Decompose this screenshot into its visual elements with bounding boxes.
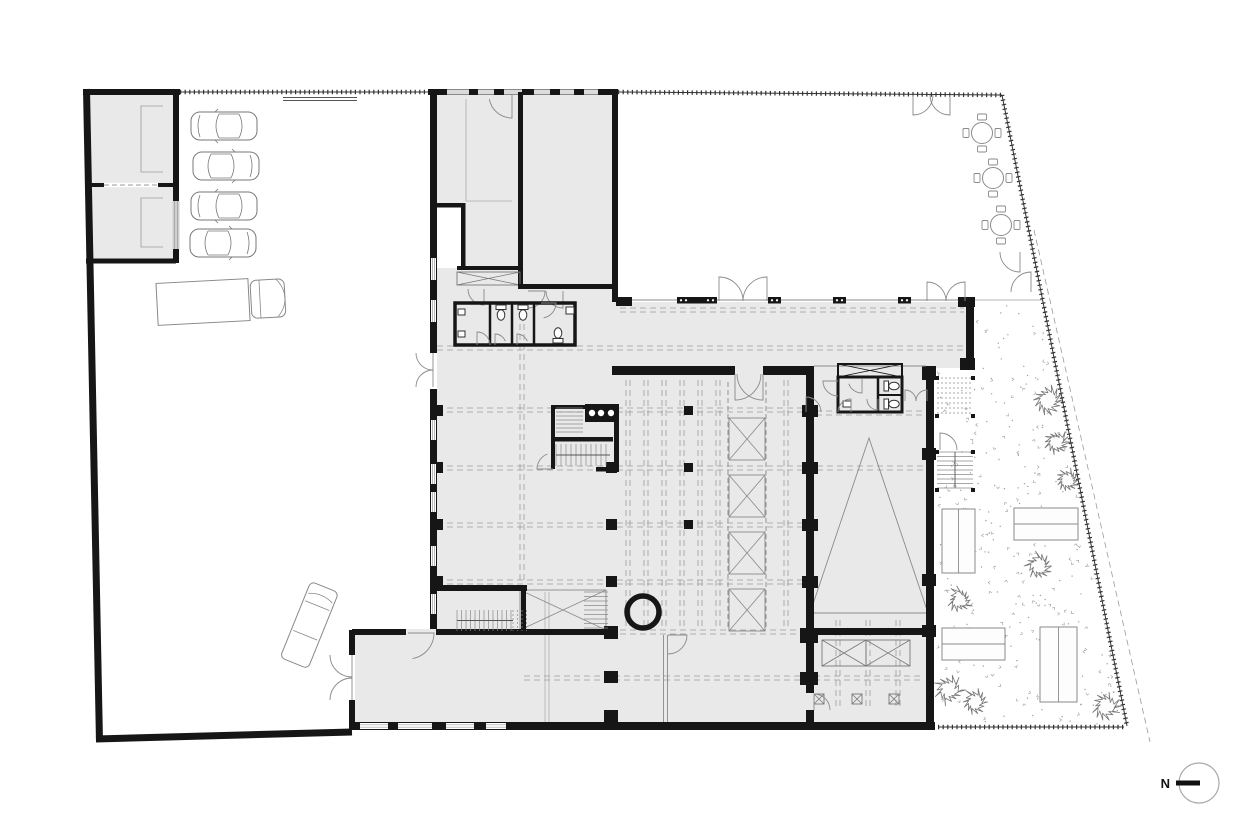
garden-ground <box>1090 577 1094 581</box>
garden-ground <box>998 343 999 344</box>
garden-ground <box>939 497 940 498</box>
sink <box>458 331 465 337</box>
garden-ground <box>1035 377 1036 378</box>
garden-ground <box>1005 580 1009 583</box>
garden-ground <box>976 320 979 323</box>
garden-ground <box>984 329 988 332</box>
garden-ground <box>985 533 989 536</box>
toilet <box>884 399 899 409</box>
column <box>802 405 818 417</box>
garden-ground <box>986 452 987 453</box>
window <box>431 546 436 566</box>
gate-swing <box>1000 252 1020 272</box>
round-table <box>997 206 1006 212</box>
garden-ground <box>1071 575 1072 576</box>
garden-ground <box>996 487 999 489</box>
toilet <box>518 305 528 320</box>
garden-ground <box>1113 692 1114 693</box>
round-table <box>978 114 987 120</box>
fence-north-right <box>618 92 1002 95</box>
garden-ground <box>1059 718 1061 721</box>
door-swing <box>940 433 957 450</box>
round-table <box>983 168 1004 189</box>
window <box>560 90 574 95</box>
wall-room-a-step <box>461 203 466 269</box>
garden-ground <box>979 475 983 479</box>
garden-ground <box>1006 413 1010 417</box>
column <box>802 519 818 531</box>
stair-post <box>935 414 939 418</box>
round-table <box>963 129 969 138</box>
corridor-vent <box>677 297 717 304</box>
garden-ground <box>1018 313 1019 314</box>
garden-ground <box>1052 587 1056 591</box>
sink <box>458 309 465 315</box>
garden-ground <box>1057 612 1059 615</box>
garden-ground <box>1082 676 1083 677</box>
round-table <box>978 146 987 152</box>
column <box>802 462 818 474</box>
garden-ground <box>1036 602 1037 603</box>
round-table <box>982 206 1020 244</box>
garden-ground <box>1017 487 1018 488</box>
garden-ground <box>1086 693 1090 696</box>
garden-ground <box>1011 395 1014 399</box>
garden-ground <box>979 547 983 551</box>
garden-ground <box>1017 595 1021 598</box>
garden-ground <box>1018 455 1019 456</box>
garden-ground <box>1080 704 1081 705</box>
toilet <box>496 305 506 320</box>
garden-ground <box>984 551 985 552</box>
stair-core-wall <box>551 437 613 442</box>
parked-car <box>191 112 257 140</box>
site-wall-south <box>96 732 352 739</box>
garden-ground <box>1032 715 1033 716</box>
garden-ground <box>998 684 1001 688</box>
garden-ground <box>974 457 975 458</box>
garden-ground <box>945 667 948 671</box>
delivery-truck <box>156 279 250 326</box>
stair-core-dot <box>608 410 614 416</box>
wall-pilaster <box>437 462 443 473</box>
garden-ground <box>1107 663 1108 664</box>
garden-ground <box>1031 600 1035 604</box>
garden-ground <box>1021 573 1022 574</box>
column <box>922 574 936 586</box>
garden-ground <box>1010 646 1011 647</box>
garden-ground <box>1062 716 1063 717</box>
garden-ground <box>1042 427 1043 428</box>
garden-ground <box>1015 603 1016 604</box>
garden-ground <box>979 509 980 510</box>
garage-door <box>173 201 180 249</box>
garden-ground <box>1013 556 1014 557</box>
garden-ground <box>1036 694 1039 698</box>
round-table <box>997 238 1006 244</box>
garden-ground <box>956 502 960 505</box>
garden-ground <box>1003 502 1007 505</box>
garden-ground <box>1016 552 1020 556</box>
window <box>446 723 474 729</box>
garden-ground <box>1024 483 1025 484</box>
garden-ground <box>977 483 978 484</box>
garden-ground <box>1009 626 1010 627</box>
window <box>431 594 436 614</box>
garden-ground <box>991 674 994 676</box>
garden-ground <box>1084 648 1086 651</box>
toilet <box>553 339 563 344</box>
garden-ground <box>1000 621 1004 625</box>
toilet <box>884 399 889 409</box>
garden-ground <box>1076 549 1077 550</box>
column <box>606 576 617 587</box>
garden-ground <box>1033 543 1035 546</box>
garden-ground <box>981 566 982 567</box>
garden-ground <box>1080 593 1081 594</box>
corridor-vent <box>841 299 843 301</box>
garden-ground <box>1043 332 1044 333</box>
garden-ground <box>1012 420 1013 421</box>
garden-ground <box>1014 665 1018 668</box>
garden-ground <box>1037 698 1038 699</box>
garden-ground <box>1075 495 1078 499</box>
garden-ground <box>1043 369 1044 370</box>
garden-ground <box>973 609 974 610</box>
sink <box>843 401 851 407</box>
wall-stair-room-north <box>430 585 527 591</box>
corridor-vent <box>707 299 709 301</box>
stair-post <box>935 450 939 454</box>
garden-ground <box>993 539 994 540</box>
corridor-vent <box>680 299 682 301</box>
garden-ground <box>1052 606 1056 609</box>
column <box>604 710 618 723</box>
garden-ground <box>998 347 999 348</box>
garden-ground <box>1117 710 1118 711</box>
window <box>447 90 469 95</box>
toilet <box>884 381 899 391</box>
garden-ground <box>1027 493 1028 494</box>
stair-exterior-upper <box>937 378 973 413</box>
toilet <box>884 381 889 391</box>
garden-ground <box>956 670 960 673</box>
door-swing <box>719 277 743 301</box>
garden-ground <box>1023 366 1024 367</box>
garden-ground <box>1036 425 1038 428</box>
stair-post <box>971 414 975 418</box>
sink <box>566 307 574 314</box>
garden-ground <box>1027 375 1028 376</box>
column <box>684 520 693 529</box>
garden-ground <box>1017 453 1018 454</box>
garden-ground <box>1037 446 1041 450</box>
garden-ground <box>937 645 940 649</box>
round-table <box>974 174 980 183</box>
round-table <box>963 114 1001 152</box>
window <box>398 723 432 729</box>
garden-ground <box>971 611 974 615</box>
garden-ground <box>1062 491 1063 492</box>
garden-ground <box>1078 546 1081 548</box>
garden-ground <box>992 447 996 450</box>
stair-post <box>935 488 939 492</box>
garden-ground <box>1004 488 1005 489</box>
stair-post <box>971 450 975 454</box>
garden-ground <box>970 472 971 473</box>
floor-plan-svg: N <box>0 0 1241 828</box>
garden-ground <box>1028 617 1029 618</box>
garden-ground <box>988 581 990 584</box>
garden-ground <box>988 511 989 512</box>
parked-car <box>193 152 259 180</box>
garden-ground <box>1077 712 1080 716</box>
garden-ground <box>1108 677 1109 678</box>
round-table <box>1006 174 1012 183</box>
stair-core-dot <box>598 410 604 416</box>
column <box>684 406 693 415</box>
garden-ground <box>985 675 989 678</box>
toilet <box>497 310 505 320</box>
toilet <box>889 382 899 390</box>
window <box>360 723 388 729</box>
picnic-table <box>942 628 1005 660</box>
shrub <box>1045 432 1070 455</box>
garden-ground <box>1034 553 1035 554</box>
toilet <box>518 305 528 310</box>
shrub <box>1033 385 1062 415</box>
garden-ground <box>1110 686 1111 687</box>
garden-ground <box>1012 378 1014 381</box>
garden-ground <box>1012 613 1015 615</box>
garden-ground <box>1021 603 1024 607</box>
garden-ground <box>1037 474 1038 475</box>
column <box>606 519 617 530</box>
garden-ground <box>1022 704 1025 706</box>
garden-ground <box>995 401 996 402</box>
garden-ground <box>1033 429 1034 430</box>
garden-ground <box>1044 605 1045 606</box>
door-gap <box>430 353 437 389</box>
round-table <box>989 159 998 165</box>
garden-ground <box>973 665 974 666</box>
wall-stair-room-east <box>521 585 526 632</box>
delivery-truck <box>156 277 286 326</box>
garden-ground <box>1019 444 1020 445</box>
garden-ground <box>1033 332 1036 335</box>
corridor-vent <box>712 299 714 301</box>
floor-plan-canvas: N <box>0 0 1241 828</box>
gate-swing <box>1011 272 1031 292</box>
column <box>922 448 936 460</box>
garden-ground <box>1027 486 1028 487</box>
shrub <box>1093 692 1122 720</box>
garden-ground <box>989 532 990 533</box>
stair-post <box>935 376 939 380</box>
toilet <box>554 328 562 338</box>
garden-ground <box>1034 472 1035 473</box>
door-gap <box>806 693 814 710</box>
window <box>431 464 436 484</box>
garden-ground <box>1065 465 1069 469</box>
garden-ground <box>947 578 948 579</box>
wall-south <box>349 722 935 730</box>
parked-car <box>190 229 256 257</box>
garden-ground <box>1041 506 1042 507</box>
north-label: N <box>1161 776 1170 791</box>
corridor-vent <box>898 297 911 304</box>
garden-ground <box>1041 709 1042 710</box>
corridor-vent <box>776 299 778 301</box>
wall-hall-north <box>612 366 812 375</box>
garden-ground <box>1033 595 1034 596</box>
garden-ground <box>1006 305 1007 306</box>
corridor-vent <box>836 299 838 301</box>
garden-ground <box>1024 466 1025 467</box>
garden-ground <box>1046 362 1049 366</box>
garden-ground <box>1093 704 1094 705</box>
garden-ground <box>1108 683 1112 686</box>
garden-ground <box>972 443 973 444</box>
round-table <box>991 215 1012 236</box>
garden-ground <box>1019 503 1020 504</box>
shrub <box>1057 468 1078 491</box>
door-swing <box>330 678 352 700</box>
stair-core-wall <box>551 405 587 409</box>
room-b-fill <box>522 92 614 286</box>
wall-pilaster <box>437 519 443 530</box>
garden-ground <box>1055 481 1056 482</box>
garden-ground <box>1069 557 1072 561</box>
garden-ground <box>1004 402 1005 403</box>
garden-ground <box>1064 609 1067 613</box>
garden-ground <box>990 378 993 382</box>
room-a-fill <box>434 92 518 271</box>
garden-ground <box>1042 339 1043 340</box>
stair-exterior-lower <box>937 452 973 488</box>
garden-ground <box>1031 629 1034 633</box>
garden-ground <box>1029 553 1033 556</box>
stair-post <box>971 376 975 380</box>
garden-ground <box>981 387 985 390</box>
garden-ground <box>983 368 984 369</box>
garden-ground <box>1085 566 1086 567</box>
garden-ground <box>1109 656 1110 657</box>
round-table <box>1014 221 1020 230</box>
garden-ground <box>994 485 995 486</box>
garden-ground <box>1078 621 1079 622</box>
column <box>604 671 618 683</box>
garden-ground <box>937 371 941 375</box>
garden-ground <box>1026 383 1027 384</box>
round-table <box>972 123 993 144</box>
wall-room-b-east <box>612 89 618 302</box>
picnic-table <box>942 509 975 573</box>
garden-ground <box>1044 545 1045 546</box>
garden-ground <box>974 389 975 390</box>
parked-car <box>190 226 256 260</box>
garden-ground <box>1111 675 1113 678</box>
toilet <box>553 328 563 343</box>
picnic-table <box>1014 508 1078 540</box>
garden-ground <box>1032 480 1035 484</box>
garden-ground <box>985 332 986 333</box>
garden-ground <box>1096 723 1097 724</box>
wall-pilaster <box>437 405 443 416</box>
stair-core-dot <box>589 410 595 416</box>
wall-annex-south <box>806 628 934 635</box>
garden-ground <box>988 552 989 553</box>
corridor-vent <box>906 299 908 301</box>
garden-ground <box>957 700 961 703</box>
garden-ground <box>1076 559 1080 562</box>
garden-ground <box>1010 506 1011 507</box>
garden-ground <box>1040 595 1041 596</box>
door-swing <box>743 277 767 301</box>
garden-ground <box>983 665 984 666</box>
garden-ground <box>1037 379 1038 380</box>
garden-ground <box>1020 632 1023 636</box>
garden-ground <box>1101 654 1102 655</box>
garden-ground <box>1048 603 1051 607</box>
round-table <box>982 221 988 230</box>
garden-ground <box>1000 312 1001 313</box>
garden-ground <box>986 421 987 422</box>
wall-room-a-step <box>430 203 465 208</box>
garden-ground <box>940 544 941 545</box>
garden-ground <box>1101 692 1102 693</box>
garden-ground <box>1074 543 1077 546</box>
garden-ground <box>1001 358 1002 359</box>
garden-ground <box>1002 435 1006 438</box>
garden-ground <box>966 417 970 420</box>
shrub <box>948 586 972 612</box>
garden-ground <box>1037 465 1039 468</box>
garden-ground <box>951 584 952 585</box>
wall-annex-east <box>926 366 934 730</box>
garden-ground <box>1105 694 1106 695</box>
garden-ground <box>1044 599 1045 600</box>
garden-ground <box>982 534 984 537</box>
round-table <box>974 159 1012 197</box>
window <box>534 90 550 95</box>
garden-ground <box>1070 721 1071 722</box>
garden-ground <box>1022 387 1026 390</box>
wall-room-a-south <box>457 266 522 270</box>
wall-corner-column <box>960 358 975 370</box>
garden-ground <box>1000 526 1001 527</box>
picnic-table <box>1040 627 1077 702</box>
garden-ground <box>1070 562 1074 565</box>
garden-ground <box>974 432 976 435</box>
garden-ground <box>944 485 948 489</box>
garden-ground <box>1099 670 1101 673</box>
garden-ground <box>1068 623 1069 624</box>
shrub <box>963 689 987 715</box>
window <box>431 492 436 512</box>
stair-core-wall <box>596 467 619 472</box>
garden-ground <box>1016 660 1017 661</box>
garden-ground <box>938 504 941 508</box>
garden-ground <box>1084 689 1085 690</box>
parked-car <box>191 109 257 143</box>
garden-ground <box>947 489 951 492</box>
garden-ground <box>991 393 992 394</box>
garden-ground <box>998 459 999 460</box>
corridor-vent <box>901 299 903 301</box>
garden-ground <box>1042 425 1043 426</box>
garden-ground <box>1032 439 1036 442</box>
